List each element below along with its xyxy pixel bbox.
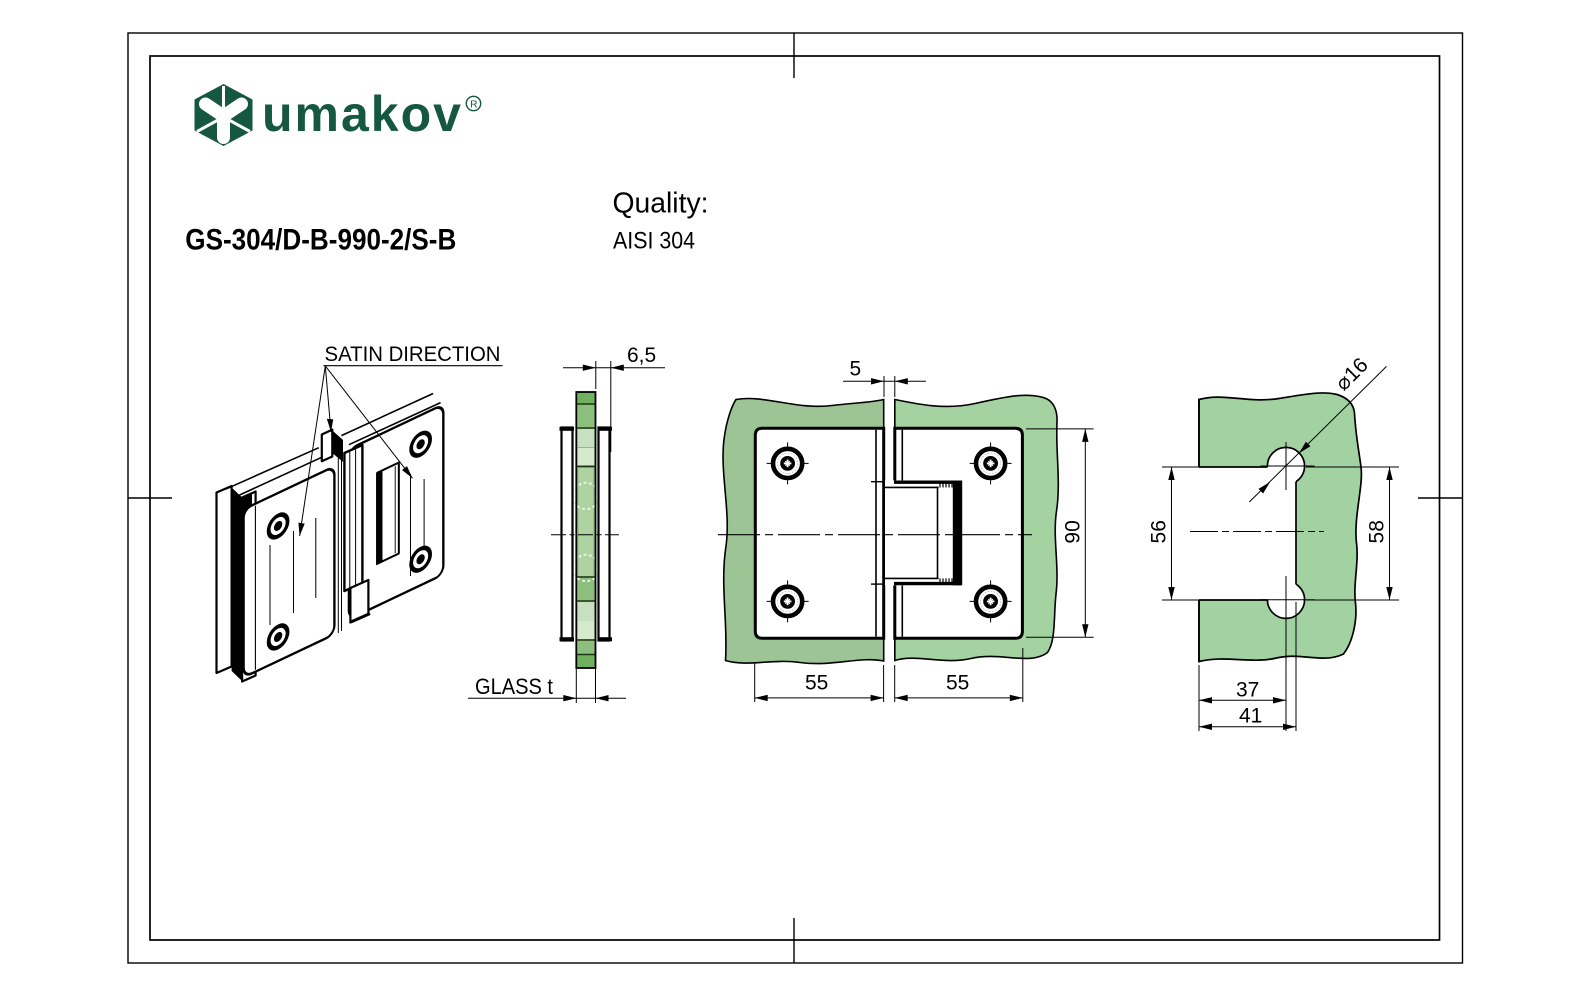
svg-text:90: 90 — [1061, 520, 1084, 543]
svg-text:56: 56 — [1148, 520, 1171, 543]
svg-text:37: 37 — [1236, 679, 1259, 702]
svg-text:umakov: umakov — [262, 86, 463, 142]
svg-text:GLASS t: GLASS t — [475, 674, 553, 699]
svg-text:Quality:: Quality: — [613, 188, 709, 220]
svg-text:GS-304/D-B-990-2/S-B: GS-304/D-B-990-2/S-B — [185, 224, 456, 257]
svg-text:5: 5 — [850, 358, 862, 381]
svg-text:55: 55 — [946, 672, 969, 695]
svg-text:R: R — [470, 100, 477, 111]
svg-text:⌀16: ⌀16 — [1331, 354, 1373, 396]
svg-text:AISI 304: AISI 304 — [613, 228, 695, 255]
svg-text:6,5: 6,5 — [627, 344, 656, 367]
svg-text:55: 55 — [805, 672, 828, 695]
svg-text:41: 41 — [1239, 705, 1262, 728]
svg-text:SATIN DIRECTION: SATIN DIRECTION — [325, 342, 501, 366]
svg-text:58: 58 — [1366, 520, 1389, 543]
